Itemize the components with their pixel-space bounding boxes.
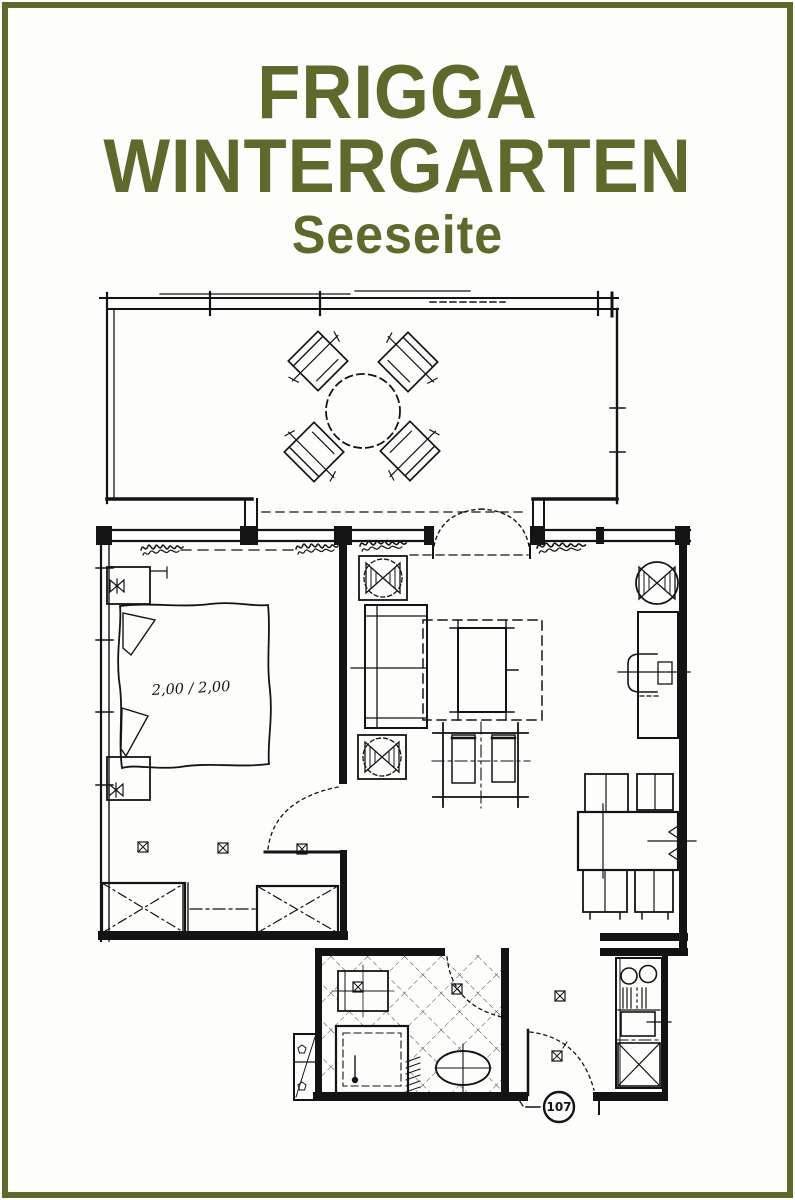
entrance-hall: 107: [519, 991, 594, 1122]
stove-icon: [618, 966, 660, 1011]
sofa-icon: [351, 605, 427, 728]
outlet-icon: [218, 843, 228, 853]
shaft: [294, 1034, 316, 1100]
patio-chair-icon: [371, 325, 446, 400]
outlet-tick: [563, 1042, 567, 1048]
double-bed-icon: 2,00 / 2,00: [118, 603, 271, 768]
outlet-icon: [138, 842, 148, 852]
floor-plan: 2,00 / 2,00: [0, 0, 795, 1200]
kitchenette-icon: [616, 958, 671, 1088]
outlet-icon: [555, 991, 565, 1001]
unit-number-badge: 107: [526, 1092, 574, 1122]
armchair-icon: [358, 735, 406, 779]
kitchen-walls: [600, 948, 688, 1093]
side-table-icon: [432, 722, 530, 808]
corner-armchair-icon: [636, 562, 678, 604]
unit-number-label: 107: [546, 1100, 571, 1114]
wintergarten: [100, 291, 625, 531]
bathroom: [294, 948, 668, 1114]
coffee-table-icon: [423, 620, 542, 720]
nightstand-icon: [107, 757, 150, 800]
wardrobe-icon: [102, 883, 188, 933]
entrance-door-icon: [519, 1030, 594, 1106]
nightstand-icon: [107, 567, 167, 604]
dimension-scribble-icon: [141, 541, 585, 555]
patio-chair-icon: [281, 324, 356, 399]
wardrobe-icon: [257, 886, 338, 933]
patio-chair-icon: [373, 414, 448, 489]
armchair-icon: [359, 556, 407, 600]
wintergarten-window-walls: [100, 291, 625, 503]
kitchen: [600, 948, 688, 1093]
bedroom-door-icon: [265, 787, 342, 852]
bed-size-label: 2,00 / 2,00: [150, 679, 230, 699]
outlet-icon: [552, 1051, 562, 1061]
bedroom: 2,00 / 2,00: [102, 567, 342, 933]
dining-set: [578, 774, 696, 919]
patio-chair-icon: [277, 415, 352, 490]
round-table-icon: [326, 374, 400, 448]
cabinet-icon: [618, 1043, 660, 1086]
living-room: [351, 556, 696, 919]
shower-icon: [336, 1026, 408, 1093]
